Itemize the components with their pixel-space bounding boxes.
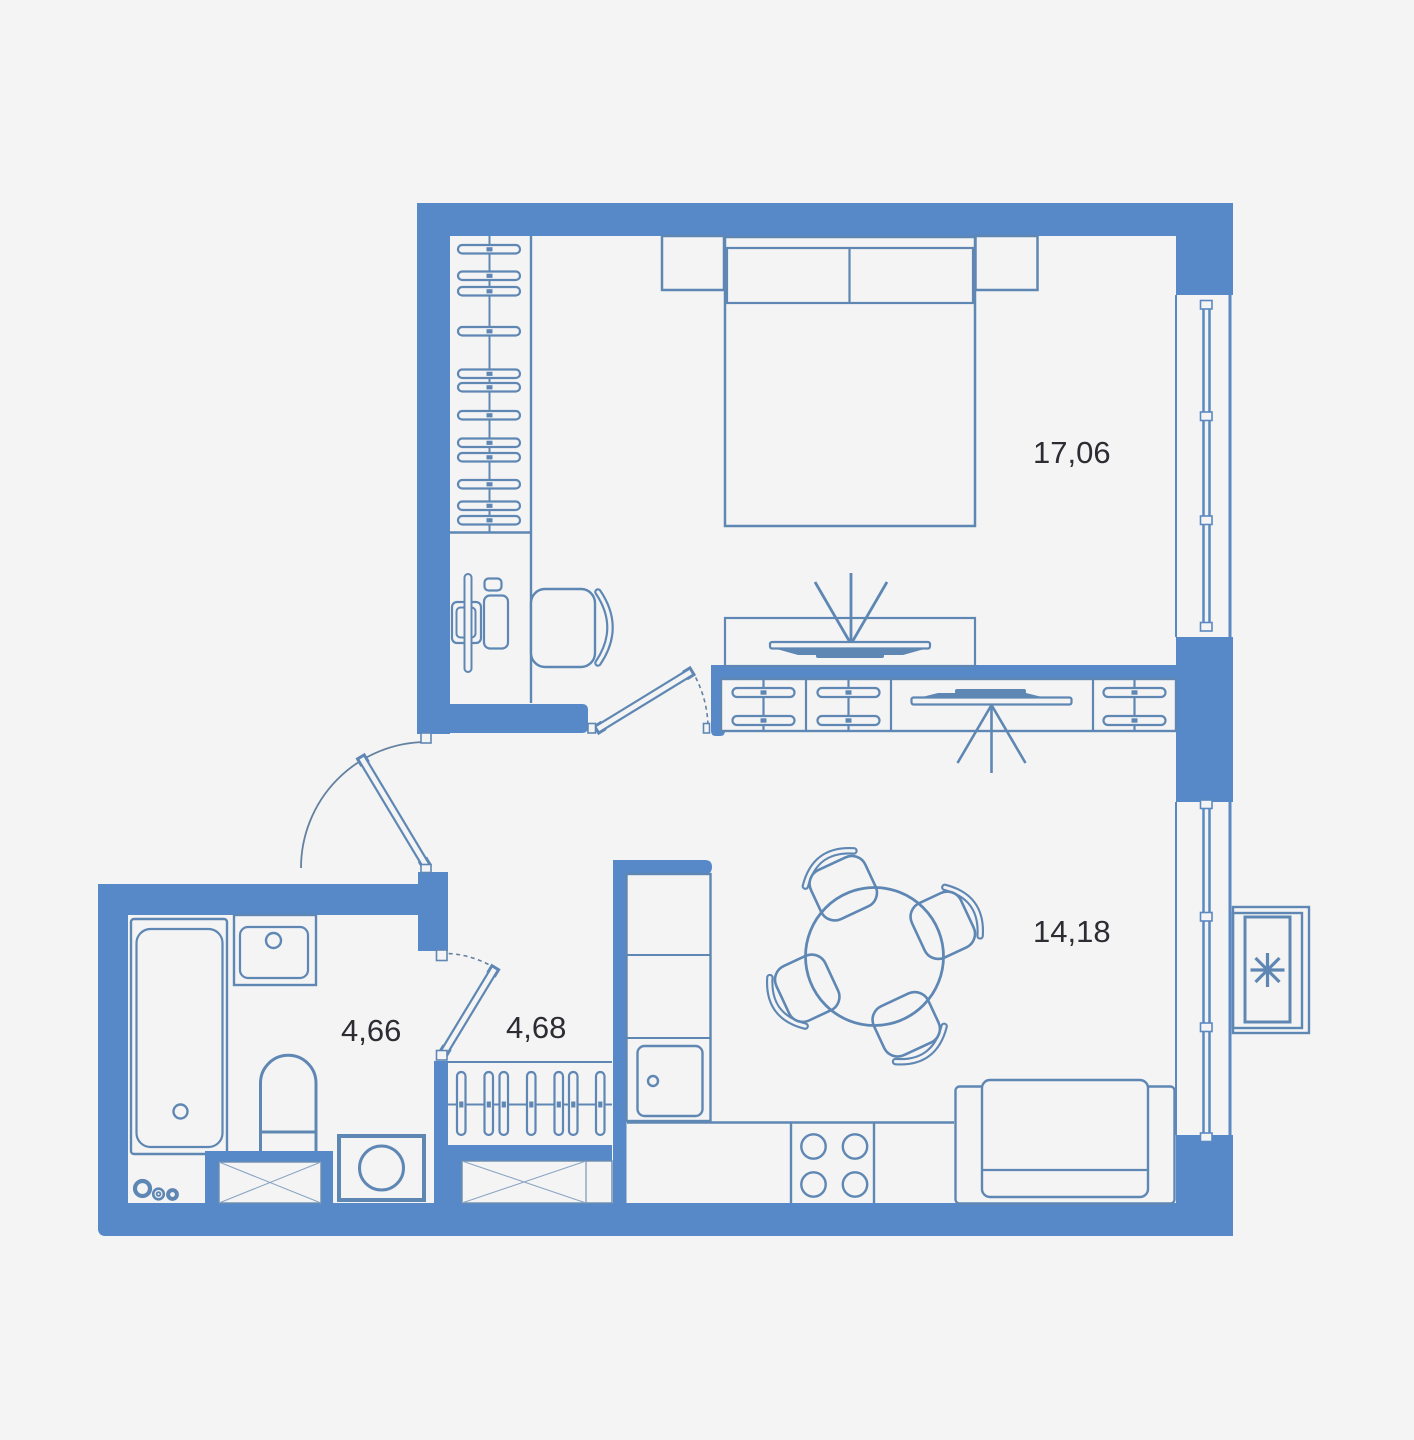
- svg-text:4,68: 4,68: [506, 1010, 566, 1045]
- svg-text:14,18: 14,18: [1033, 914, 1111, 949]
- svg-text:17,06: 17,06: [1033, 435, 1111, 470]
- svg-text:4,66: 4,66: [341, 1013, 401, 1048]
